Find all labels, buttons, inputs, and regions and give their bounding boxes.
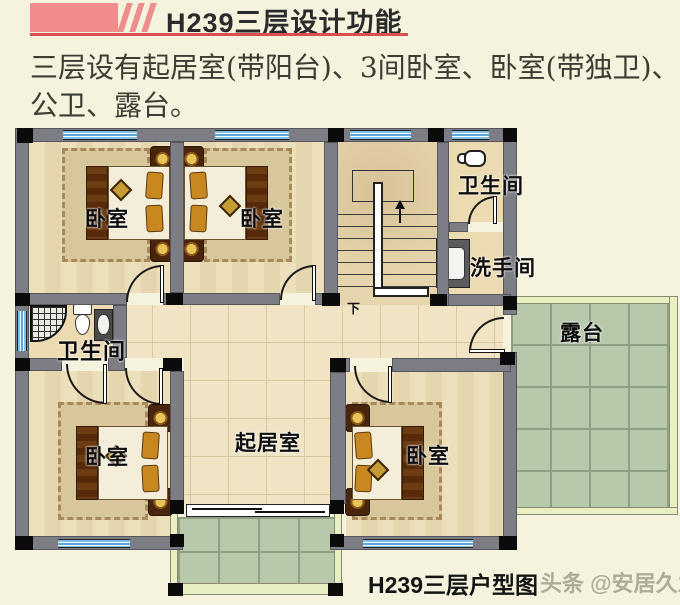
stairs-landing-outline	[352, 170, 414, 202]
window	[215, 130, 289, 140]
balcony-border-bottom	[170, 583, 342, 595]
room-label-bedroom-top-mid: 卧室	[240, 203, 284, 233]
room-label-living-room: 起居室	[235, 427, 301, 457]
wall-stair-right	[437, 142, 449, 306]
column	[17, 128, 33, 143]
description-line-2: 公卫、露台。	[30, 84, 675, 124]
room-label-bedroom-bottom-right: 卧室	[406, 440, 450, 470]
title-accent-block	[30, 3, 118, 32]
room-label-washroom: 洗手间	[470, 252, 536, 282]
door-leaf	[312, 265, 316, 301]
wall-bath-washroom-divider	[449, 222, 468, 232]
window	[452, 130, 489, 140]
column	[168, 583, 183, 596]
pillow-icon	[145, 171, 164, 199]
room-label-bathroom-left: 卫生间	[57, 334, 126, 366]
plan-caption: H239三层户型图	[368, 566, 538, 600]
room-label-bedroom-top-left: 卧室	[85, 203, 129, 233]
pillow-icon	[141, 431, 160, 459]
wall-living-right	[330, 372, 346, 504]
pillow-icon	[189, 171, 208, 199]
column	[170, 500, 184, 514]
pillow-icon	[145, 205, 163, 233]
column	[328, 128, 344, 142]
column	[503, 296, 517, 310]
stairs-down-label: 下	[347, 298, 360, 317]
wall-stair-left	[324, 142, 338, 305]
column	[170, 534, 184, 547]
stairs-steps	[338, 203, 437, 295]
watermark: 头条 @安居久业	[540, 566, 680, 598]
title-underline	[30, 33, 408, 36]
wall-bedrooms-divider	[170, 142, 184, 293]
column	[15, 536, 33, 550]
column	[163, 358, 182, 371]
sliding-door-leaf	[255, 511, 325, 513]
window	[350, 130, 411, 140]
window	[58, 539, 130, 548]
terrace-border-top	[511, 296, 678, 304]
column	[322, 293, 340, 306]
pillow-icon	[189, 205, 207, 233]
column	[328, 583, 343, 596]
wall-hall-top-a	[15, 293, 127, 305]
room-label-terrace: 露台	[560, 317, 604, 347]
wall-living-left	[170, 371, 184, 504]
column	[330, 358, 346, 372]
column	[330, 500, 344, 514]
door-leaf	[493, 196, 497, 224]
window	[17, 311, 27, 351]
window	[363, 539, 473, 548]
wall-right-upper	[503, 128, 517, 315]
room-label-bathroom-top: 卫生间	[458, 170, 524, 200]
description-line-1: 三层设有起居室(带阳台)、3间卧室、卧室(带独卫)、	[30, 46, 675, 86]
column	[15, 293, 30, 306]
column	[499, 536, 517, 550]
column	[430, 294, 447, 306]
sink-basin-icon	[97, 314, 110, 335]
column	[503, 128, 517, 142]
window	[63, 130, 137, 140]
stairs-arrow-stem	[399, 208, 401, 223]
stairs-rail-horizontal	[373, 287, 429, 297]
wall-right-lower	[503, 352, 517, 550]
hall-floor	[127, 305, 503, 358]
column	[15, 358, 30, 371]
toilet-icon	[464, 150, 486, 167]
door-leaf	[103, 364, 107, 404]
toilet-tank-icon	[457, 153, 466, 164]
wall-br-top-b	[392, 358, 511, 372]
sliding-door-leaf	[192, 508, 262, 510]
terrace-border-bottom	[511, 507, 678, 515]
stairs-rail-vertical	[373, 182, 383, 296]
door-leaf	[159, 368, 163, 405]
column	[428, 128, 444, 142]
balcony-border-left	[170, 512, 178, 590]
column	[330, 534, 344, 547]
column	[500, 352, 515, 365]
pillow-icon	[354, 431, 373, 459]
room-label-bedroom-bottom-left: 卧室	[85, 441, 129, 471]
column	[166, 293, 183, 305]
title-stripe	[141, 3, 156, 32]
balcony-tiles	[178, 517, 334, 585]
pillow-icon	[141, 465, 159, 493]
terrace-border-right	[669, 296, 678, 515]
door-leaf	[388, 366, 392, 403]
balcony-border-right	[334, 512, 342, 590]
door-leaf	[160, 265, 164, 303]
